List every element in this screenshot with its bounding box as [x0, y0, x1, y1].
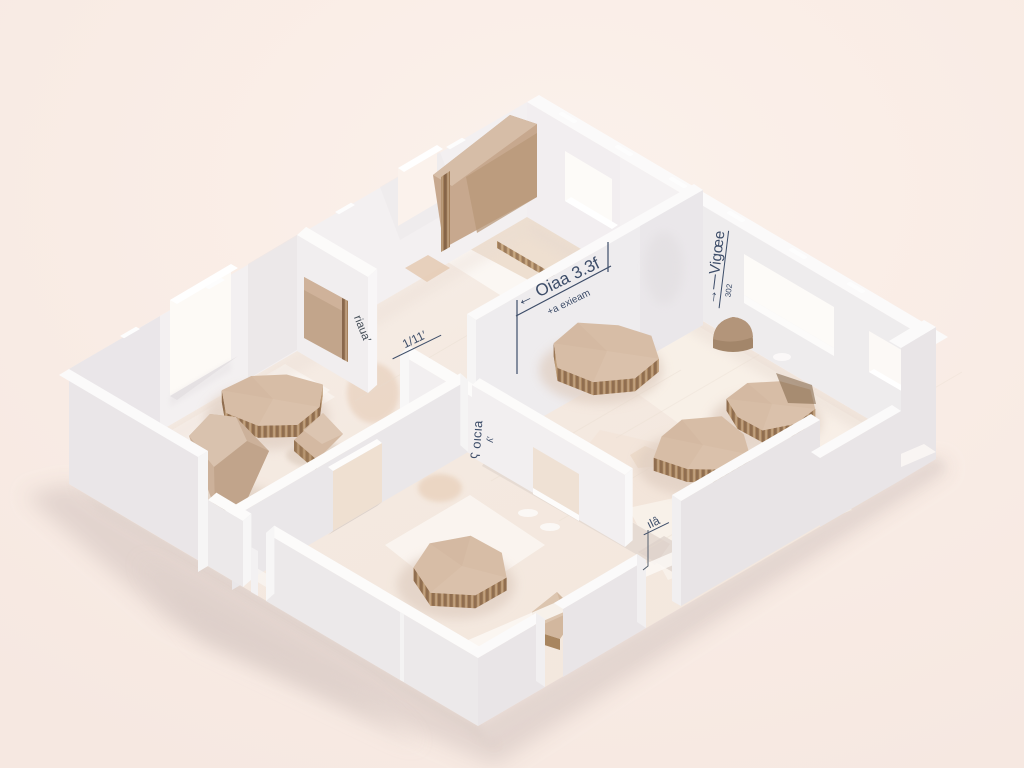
svg-text:ʕ oıcıa: ʕ oıcıa [468, 419, 486, 459]
svg-text:302: 302 [724, 283, 735, 298]
svg-text:ʎ′: ʎ′ [485, 436, 495, 443]
